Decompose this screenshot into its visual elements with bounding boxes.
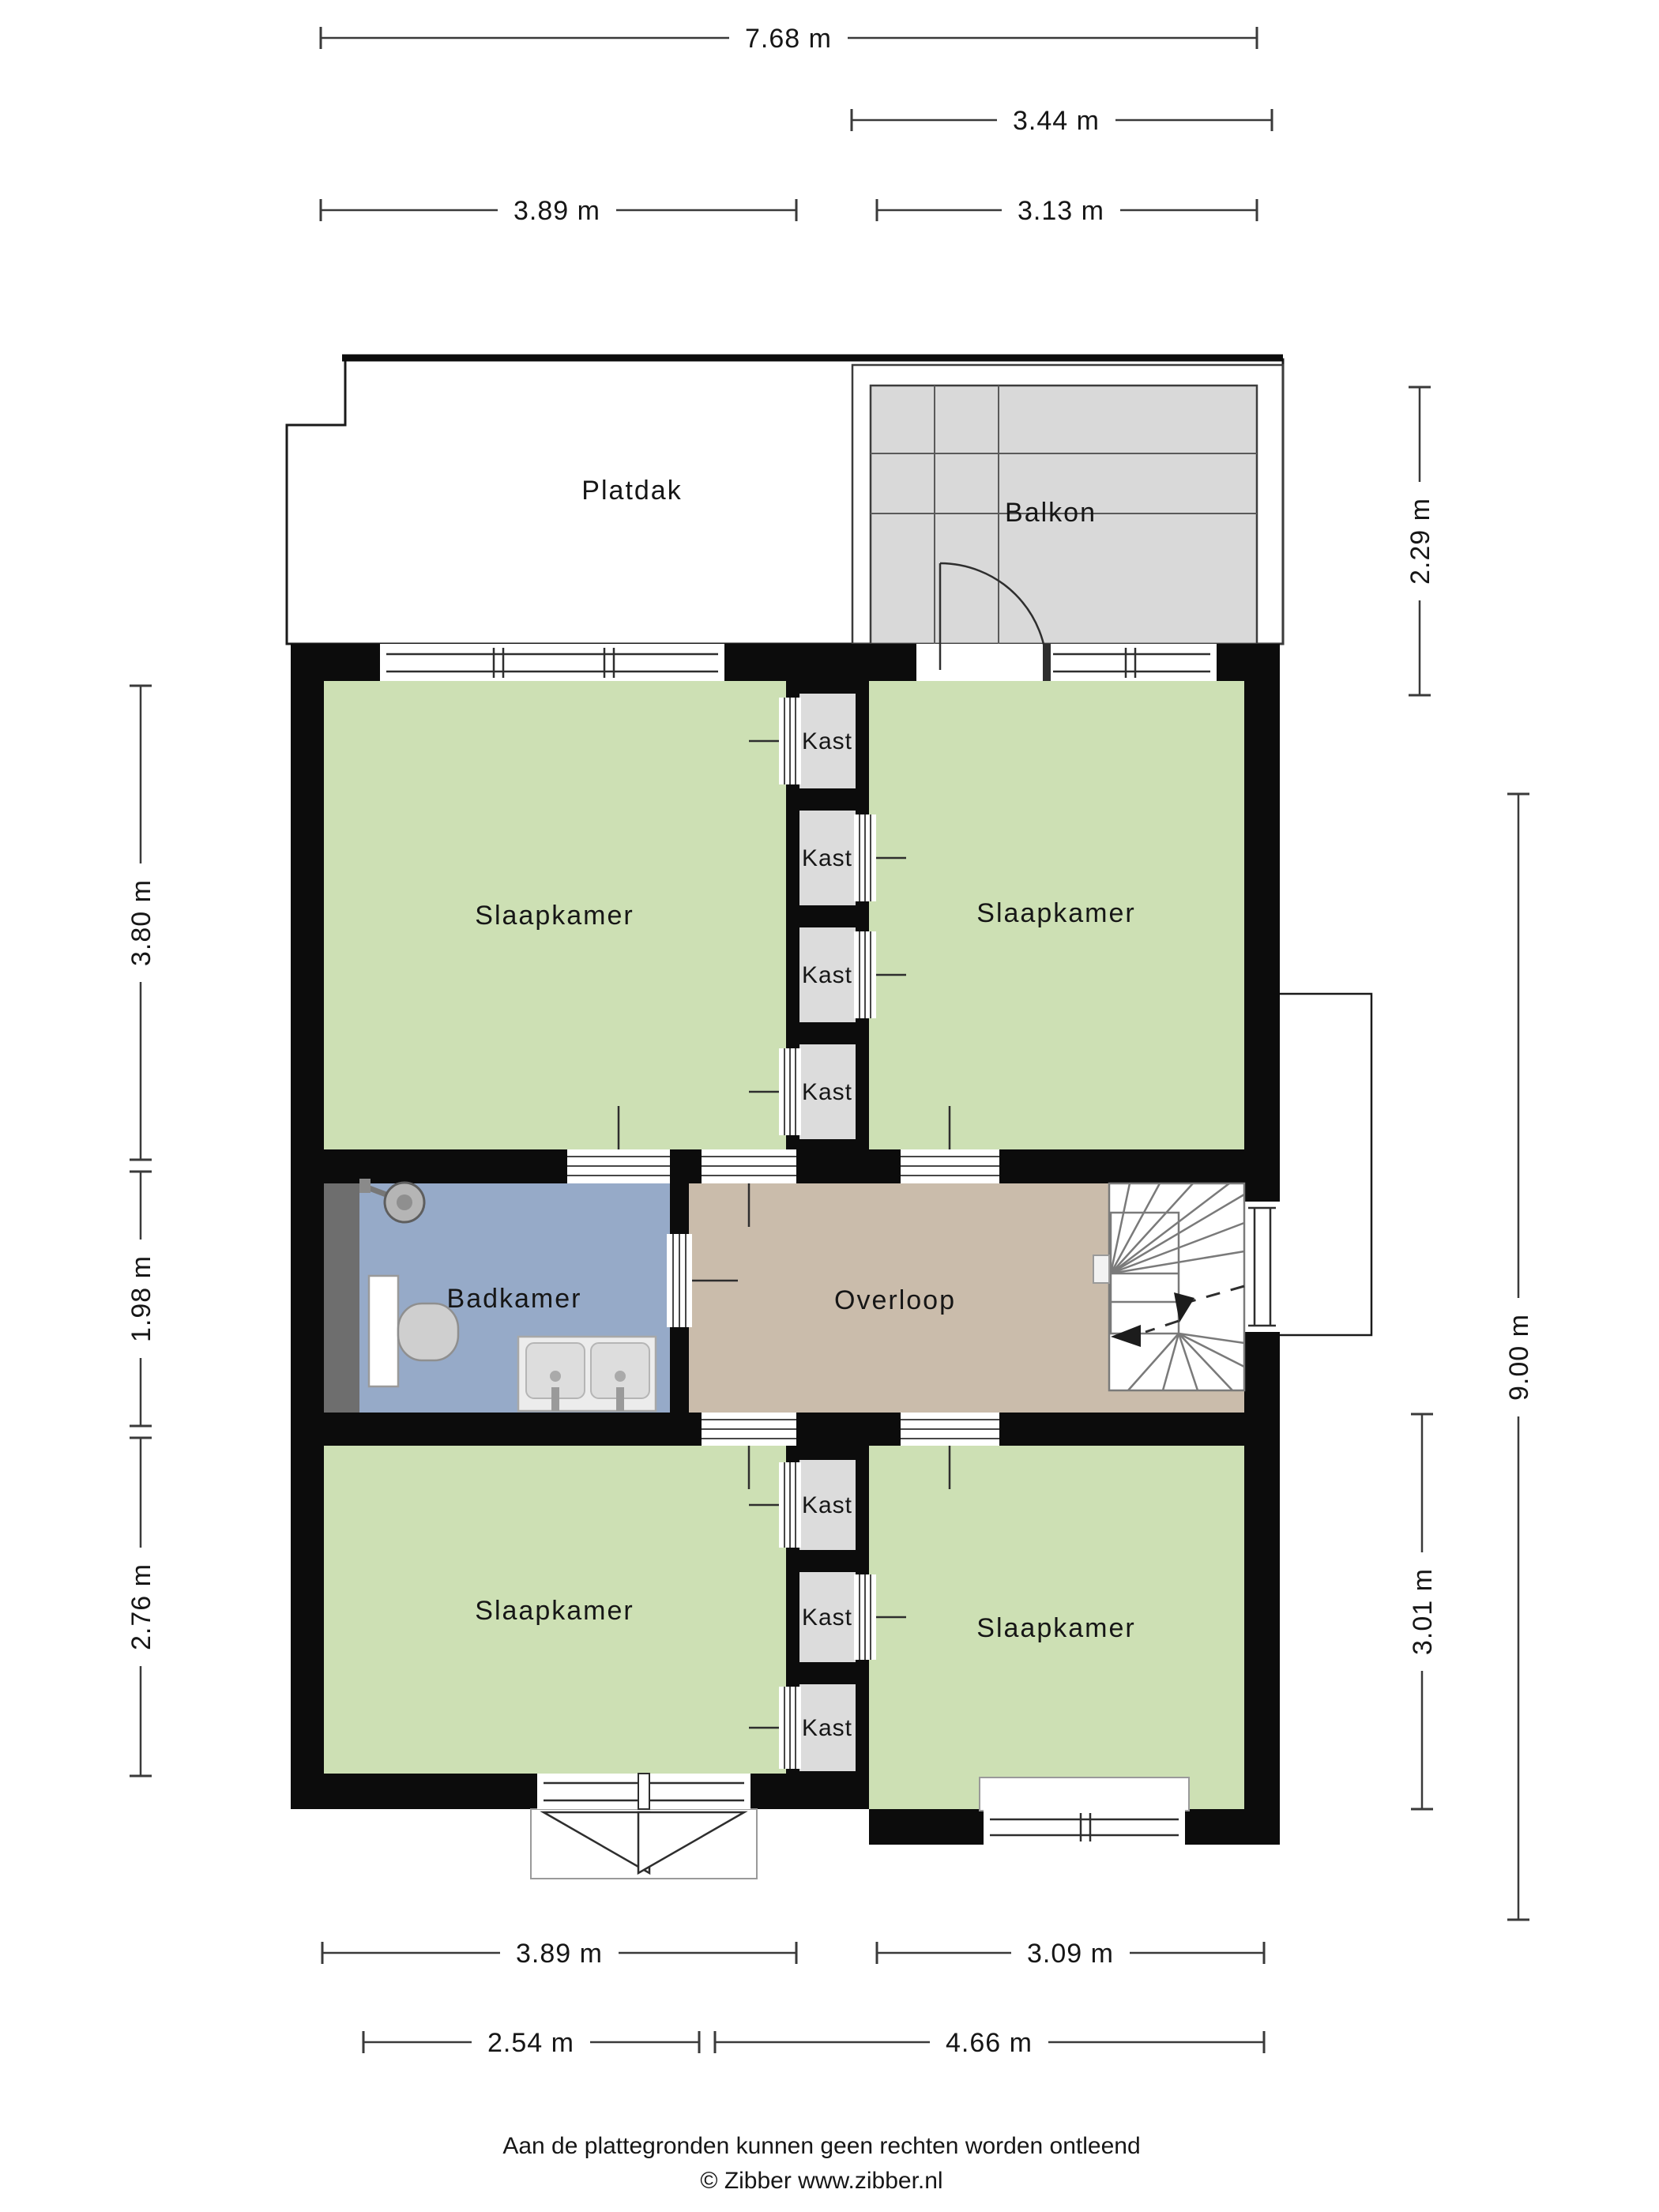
kast-label: Kast: [802, 845, 852, 871]
room-label: Slaapkamer: [976, 898, 1135, 928]
window-right-stairs: [1244, 1202, 1280, 1332]
dim-left-bottom: 2.76 m: [125, 1438, 156, 1776]
balkon-area: Balkon: [852, 365, 1283, 644]
svg-text:2.54 m: 2.54 m: [487, 2028, 574, 2058]
window-sill: [980, 1777, 1189, 1811]
kast-label: Kast: [802, 962, 852, 988]
kast-label: Kast: [802, 728, 852, 754]
staircase: [1093, 1183, 1244, 1390]
balkon-label: Balkon: [1005, 498, 1097, 528]
floorplan-page: Platdak Balkon: [0, 0, 1659, 2212]
room-label: Slaapkamer: [475, 901, 634, 931]
svg-text:3.09 m: 3.09 m: [1027, 1939, 1114, 1969]
platdak-label: Platdak: [581, 476, 682, 506]
svg-text:3.89 m: 3.89 m: [516, 1939, 603, 1969]
stair-handrail-post: [1093, 1255, 1109, 1283]
exterior-bump-outline: [1277, 994, 1371, 1335]
window-bottom-right: [980, 1777, 1189, 1845]
dim-left-top: 3.80 m: [125, 686, 156, 1160]
svg-text:3.80 m: 3.80 m: [126, 879, 156, 966]
room-label: Slaapkamer: [976, 1613, 1135, 1643]
svg-text:3.89 m: 3.89 m: [513, 196, 600, 226]
dim-bottom2-right: 4.66 m: [715, 2026, 1264, 2058]
footer-credit: © Zibber www.zibber.nl: [700, 2168, 942, 2194]
dim-right-bottom: 3.01 m: [1406, 1414, 1438, 1809]
svg-text:2.29 m: 2.29 m: [1405, 498, 1435, 585]
french-door: [531, 1774, 757, 1879]
dim-bottom-left: 3.89 m: [322, 1937, 796, 1969]
svg-text:3.13 m: 3.13 m: [1018, 196, 1104, 226]
dim-top-total: 7.68 m: [321, 22, 1257, 54]
dim-bottom-right: 3.09 m: [877, 1937, 1264, 1969]
shaft-strip: [324, 1183, 359, 1413]
room-label: Slaapkamer: [475, 1596, 634, 1626]
kast-label: Kast: [802, 1604, 852, 1631]
footer: Aan de plattegronden kunnen geen rechten…: [502, 2133, 1140, 2194]
dim-top-right: 3.13 m: [877, 194, 1257, 226]
dim-left-middle: 1.98 m: [125, 1172, 156, 1426]
dim-top-balcony: 3.44 m: [852, 104, 1272, 136]
dim-right-balcony: 2.29 m: [1404, 387, 1435, 695]
dim-bottom2-left: 2.54 m: [363, 2026, 699, 2058]
room-label: Badkamer: [447, 1284, 582, 1314]
dim-top-left: 3.89 m: [321, 194, 796, 226]
footer-disclaimer: Aan de plattegronden kunnen geen rechten…: [502, 2133, 1140, 2159]
window-top-left: [380, 644, 724, 681]
svg-text:9.00 m: 9.00 m: [1504, 1314, 1534, 1401]
svg-text:2.76 m: 2.76 m: [126, 1563, 156, 1650]
kast-label: Kast: [802, 1492, 852, 1518]
svg-text:4.66 m: 4.66 m: [946, 2028, 1033, 2058]
svg-text:3.44 m: 3.44 m: [1013, 106, 1100, 136]
svg-text:7.68 m: 7.68 m: [745, 24, 832, 54]
svg-text:3.01 m: 3.01 m: [1408, 1568, 1438, 1655]
double-washbasin: [518, 1337, 656, 1411]
svg-text:1.98 m: 1.98 m: [126, 1255, 156, 1342]
kast-label: Kast: [802, 1079, 852, 1105]
kast-label: Kast: [802, 1715, 852, 1741]
dim-right-total: 9.00 m: [1503, 794, 1534, 1920]
room-label: Overloop: [834, 1285, 956, 1315]
